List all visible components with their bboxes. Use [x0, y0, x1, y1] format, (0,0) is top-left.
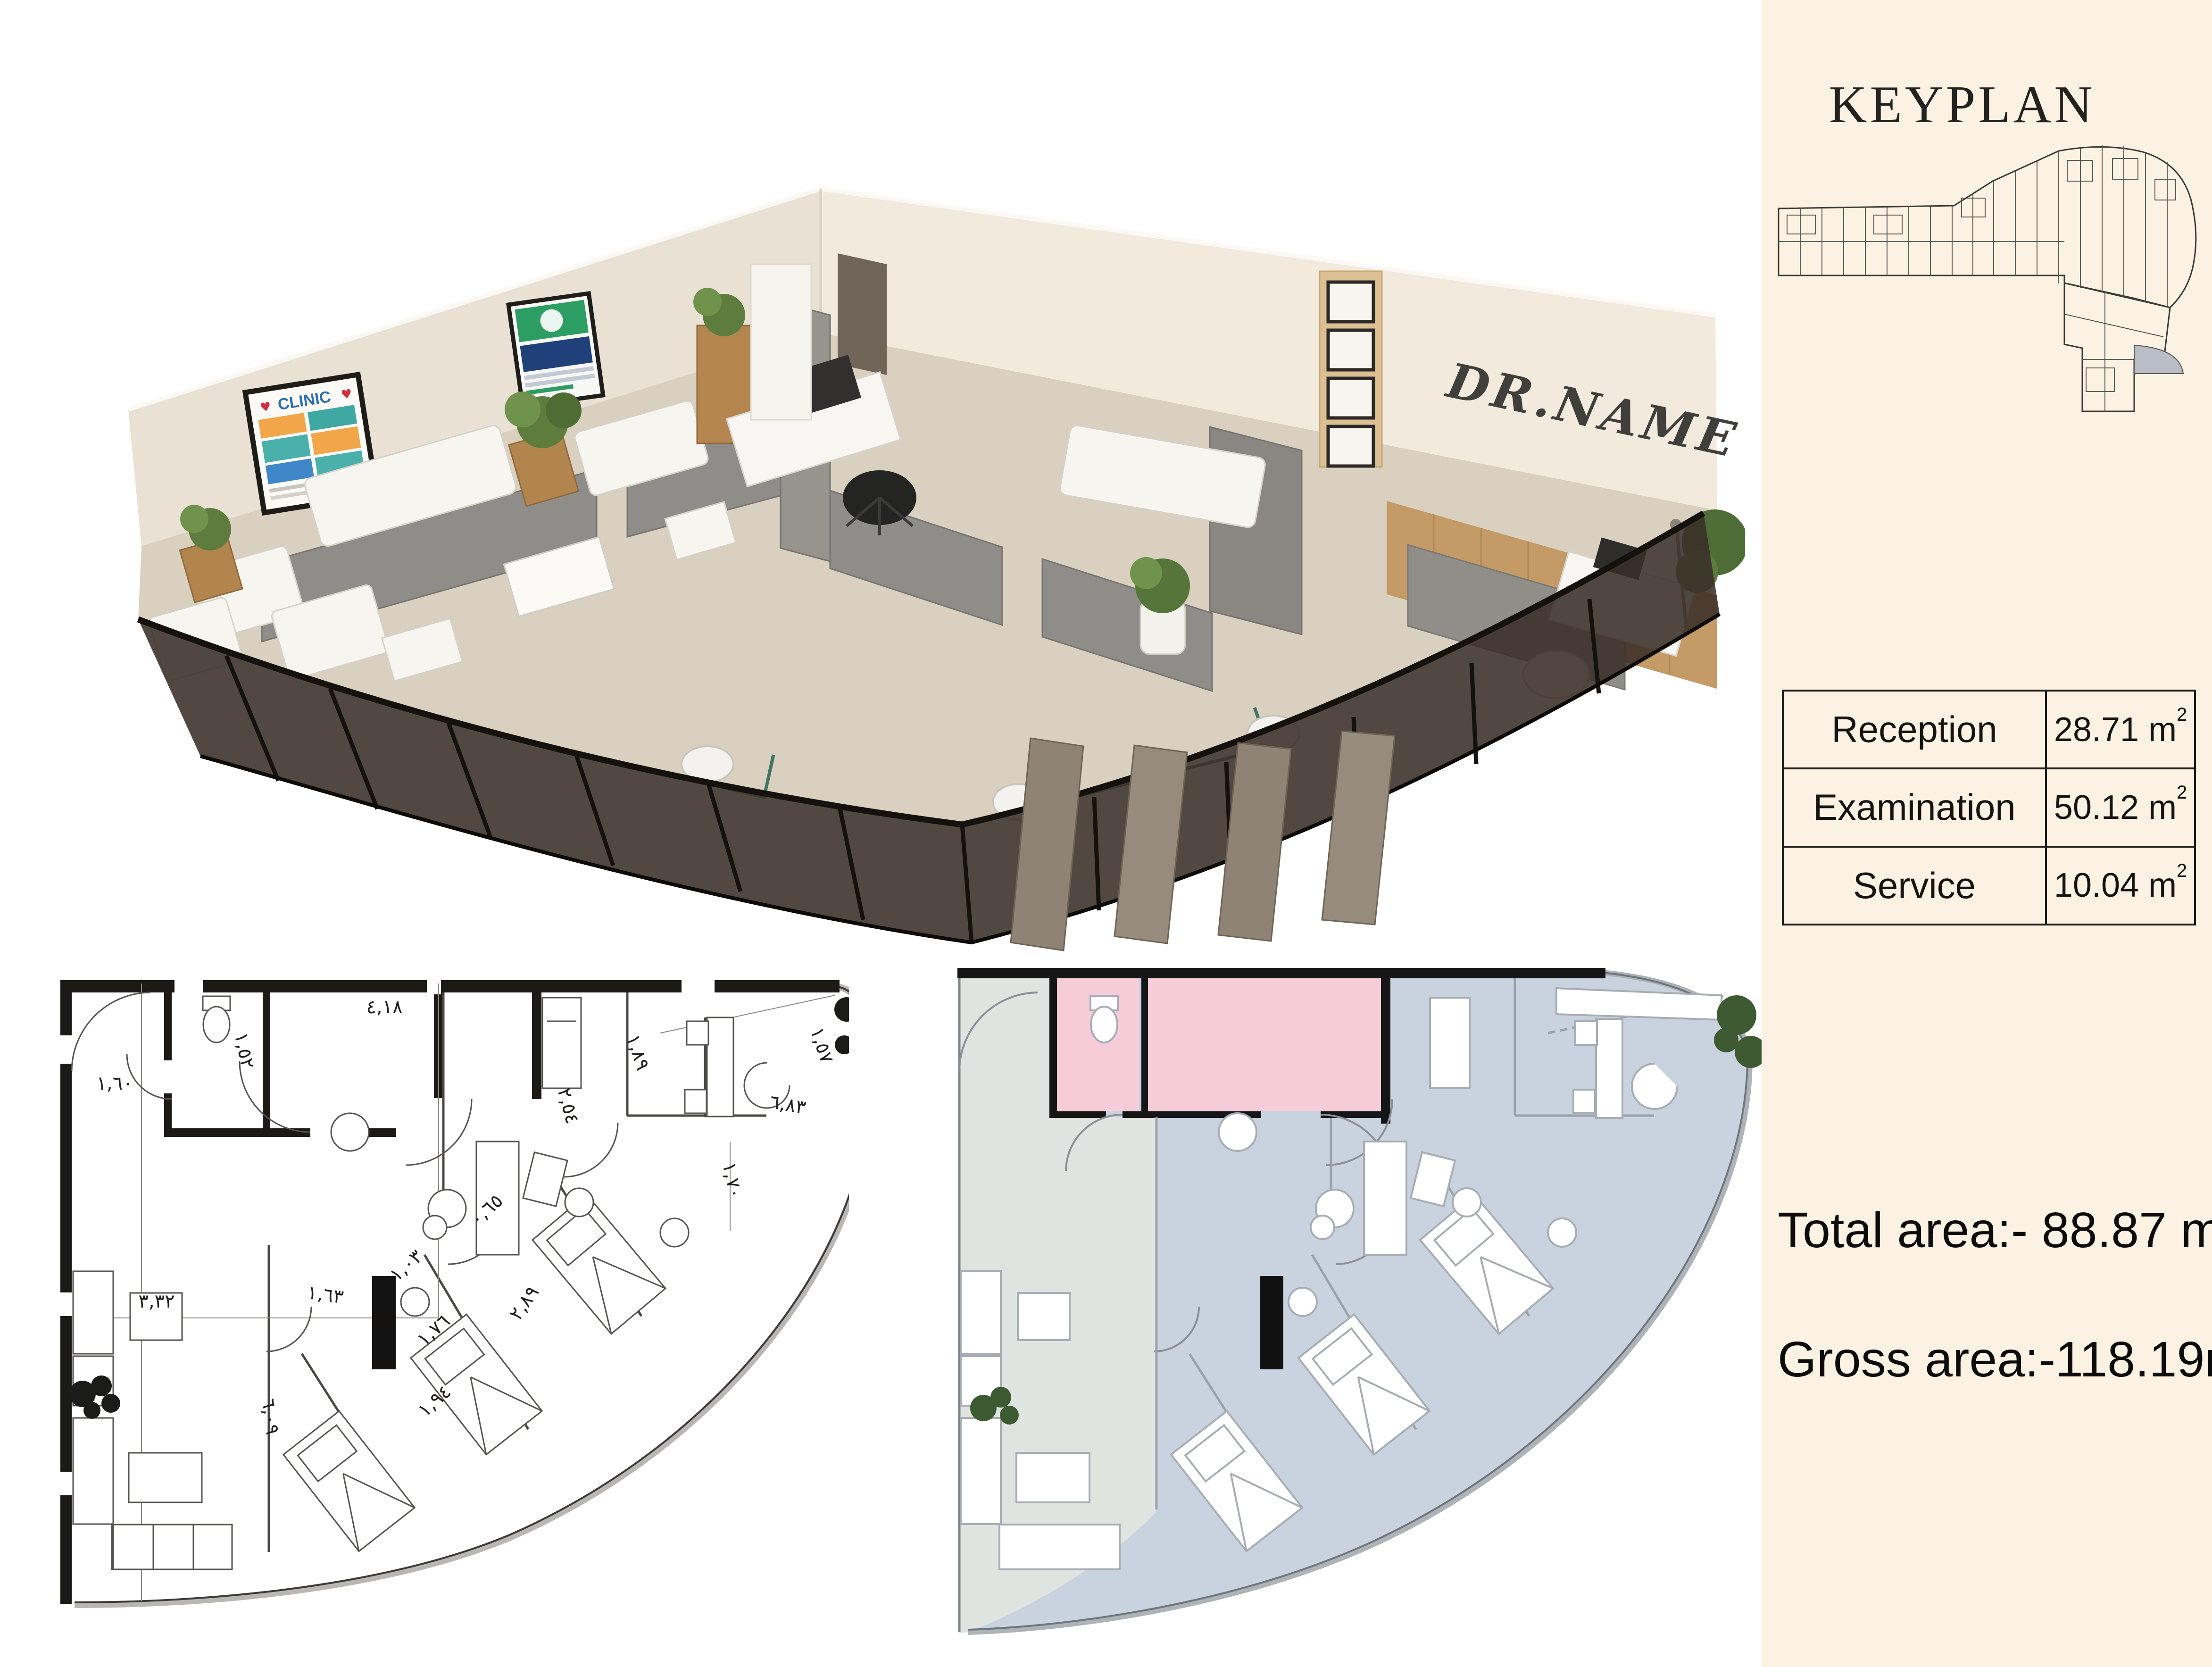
floorplan-colored	[953, 967, 1764, 1646]
sink-icon	[1219, 1113, 1256, 1151]
info-poster	[508, 293, 603, 407]
room-label: Examination	[1783, 768, 2046, 846]
gross-area-text: Gross area:-118.19m2	[1778, 1331, 2212, 1388]
svg-text:٤,١٨: ٤,١٨	[366, 996, 402, 1018]
picture-frames	[1320, 271, 1382, 467]
svg-text:٢,٨٩: ٢,٨٩	[505, 1282, 543, 1325]
cabinet	[1260, 1276, 1283, 1369]
table-row: Examination 50.12 m2	[1783, 768, 2195, 846]
room-service-wc	[1056, 975, 1139, 1111]
info-panel: KEYPLAN	[1762, 0, 2212, 1667]
room-area: 10.04 m2	[2046, 847, 2195, 925]
cabinet	[372, 1276, 396, 1369]
svg-text:١,٧٠: ١,٧٠	[718, 1160, 747, 1200]
room-area: 28.71 m2	[2046, 691, 2195, 768]
svg-text:٢,٥٤: ٢,٥٤	[553, 1085, 583, 1126]
room-label: Reception	[1783, 691, 2046, 768]
svg-text:٦,٨٣: ٦,٨٣	[768, 1091, 807, 1119]
keyplan-drawing	[1775, 142, 2204, 415]
furniture	[73, 996, 790, 1569]
toilet-icon	[1091, 1007, 1117, 1042]
room-label: Service	[1783, 847, 2046, 925]
poster-heart-icon: ♥	[259, 400, 272, 415]
svg-text:٣,٣٢: ٣,٣٢	[138, 1291, 175, 1312]
keyplan-title: KEYPLAN	[1762, 75, 2162, 135]
room-area: 50.12 m2	[2046, 768, 2195, 846]
toilet-icon	[203, 1007, 230, 1042]
sink-icon	[331, 1113, 369, 1151]
clinic-plan-sheet: ♥ CLINIC ♥ DR.NAME	[0, 0, 2212, 1667]
svg-text:١,٥٢: ١,٥٢	[230, 1031, 258, 1071]
area-table: Reception 28.71 m2 Examination 50.12 m2 …	[1782, 690, 2196, 925]
table-row: Reception 28.71 m2	[1783, 691, 2195, 768]
svg-text:١,٥٧: ١,٥٧	[806, 1025, 838, 1066]
svg-text:٦,٠٩: ٦,٠٩	[257, 1397, 283, 1436]
floorplan-cad: ٤,١٨ ١,٥٢ ١,٦٠ ١,٨٩ ١,٥٧ ٦,٨٣ ١,٧٠ ٠,٦٥ …	[47, 967, 849, 1642]
table-row: Service 10.04 m2	[1783, 847, 2195, 925]
keyplan-unit-highlight	[2134, 345, 2183, 374]
svg-text:١,٦٣: ١,٦٣	[306, 1282, 345, 1308]
svg-text:١,٦٠: ١,٦٠	[96, 1073, 133, 1094]
poster-heart-icon: ♥	[340, 387, 353, 402]
total-area-text: Total area:- 88.87 m2	[1778, 1202, 2212, 1259]
render-3d: ♥ CLINIC ♥ DR.NAME	[42, 156, 1745, 958]
room-service	[1148, 975, 1383, 1111]
